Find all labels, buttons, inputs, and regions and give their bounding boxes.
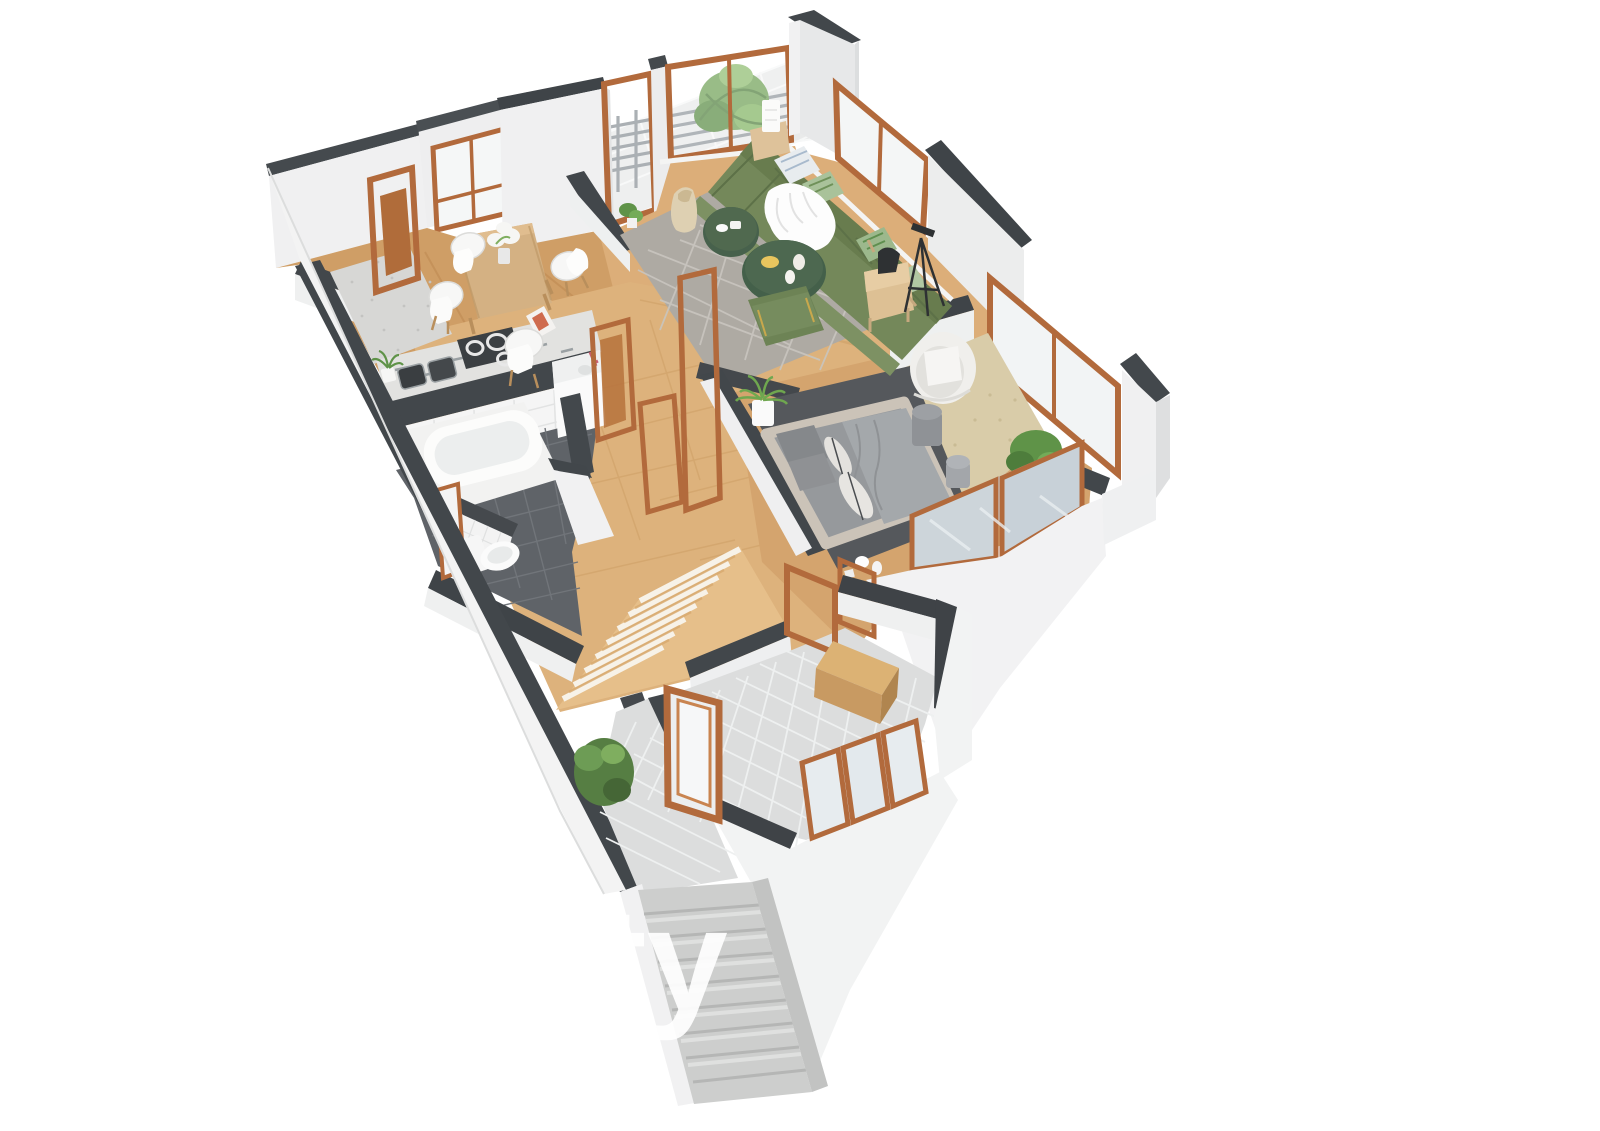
svg-text:ty: ty [598, 878, 728, 1041]
